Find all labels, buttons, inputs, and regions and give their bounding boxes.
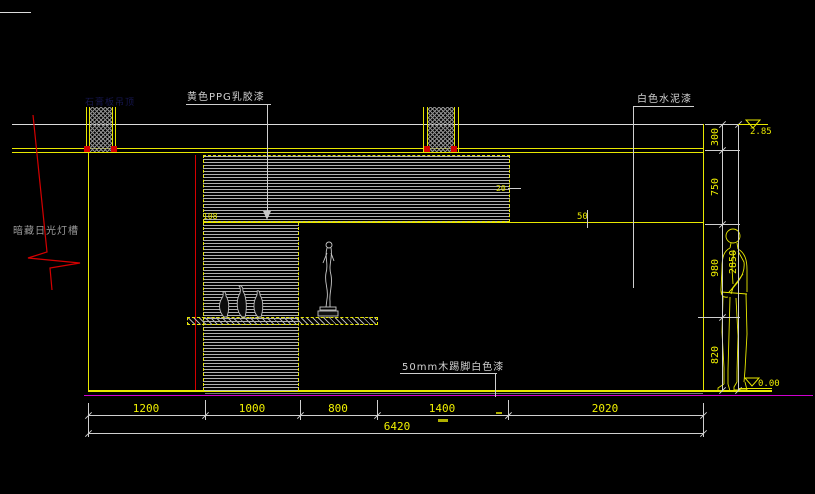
dim-value-820: 820 [711,346,721,364]
ceiling-paint-underline [186,104,271,105]
wall-paint-underline [633,106,694,107]
dimension-line-right1 [722,124,723,391]
dimension-line-total [88,433,703,434]
leader-arrow-icon [261,209,273,221]
ceiling-column-left-hatch [89,107,113,152]
ceiling-line-lower [12,152,703,153]
dim-value-1000: 1000 [239,403,266,414]
cad-drawing-canvas[interactable]: 石膏板吊顶 暗藏日光灯 [0,0,815,494]
ext-line [698,317,740,318]
ceiling-paint-leader [267,105,268,215]
stray-mark [438,419,448,422]
wall-paint-label: 白色水泥漆 [637,94,692,105]
dim-value-980: 980 [711,259,721,277]
dim-value-2850: 2850 [729,250,739,274]
dim-value-1200: 1200 [133,403,160,414]
dim-value-800: 800 [328,403,348,414]
level-floor-value: 0.00 [758,380,780,388]
display-shelf [187,317,378,325]
panel-edge-dim-line [508,188,521,189]
crosshair-segment [0,12,31,13]
dim-value-750: 750 [711,178,721,196]
ext-line [300,400,301,420]
ext-line [508,400,509,420]
ledge-dim-tick [587,210,588,228]
light-cove-leader [20,108,90,298]
stray-mark [496,412,502,414]
dim-value-2020: 2020 [592,403,619,414]
person-figure [716,224,768,392]
floor-line [88,390,772,392]
level-top-value: 2.85 [750,128,772,136]
skirting-underline [400,373,497,374]
skirting-label: 50mm木踢脚白色漆 [402,362,504,373]
dim-value-1400: 1400 [429,403,456,414]
light-cove-label: 暗藏日光灯槽 [13,226,79,237]
wall-paint-leader [633,107,634,288]
floor-dimension-line [84,395,813,396]
floor-baseline [205,393,703,394]
panel-edge-dim: 20 [496,185,506,193]
dim-value-300: 300 [711,128,721,146]
grip-square [424,146,430,152]
ext-line [377,400,378,420]
dim-value-6420: 6420 [384,421,411,432]
sculpture-decor [315,239,341,319]
ceiling-paint-label: 黄色PPG乳胶漆 [187,92,265,103]
panel-step-dim: 108 [203,213,217,221]
grip-square [451,146,457,152]
level-floor-line [739,388,772,389]
grip-square [111,146,117,152]
right-wall-edge [703,124,704,391]
dimension-line-row1 [88,415,703,416]
upper-wood-panel [203,155,510,222]
vases-decor [215,282,267,318]
skirting-leader [495,374,496,397]
ledge-line [203,222,703,223]
light-cove-line [195,155,196,390]
ext-line [205,400,206,420]
